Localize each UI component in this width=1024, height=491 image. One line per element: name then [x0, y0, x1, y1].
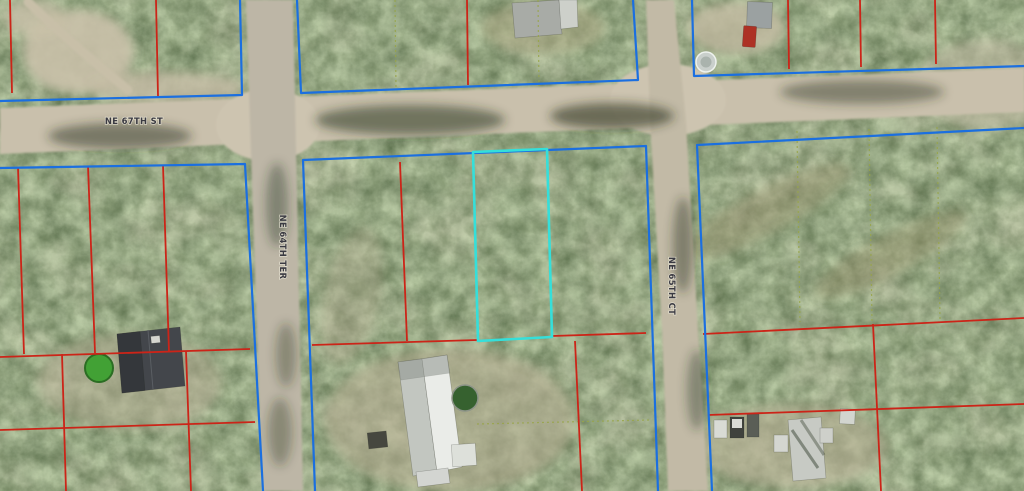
road-shadow [780, 80, 944, 104]
red-lot-line [467, 0, 468, 85]
red-truck-top-right [742, 26, 756, 48]
hut-bottom-center [367, 431, 388, 449]
street-label-ne-65th-ct: NE 65TH CT [667, 257, 677, 315]
road-shadow [315, 105, 505, 135]
aerial-parcel-map[interactable]: NE 67TH ST NE 64TH TER NE 65TH CT [0, 0, 1024, 491]
map-canvas[interactable]: NE 67TH ST NE 64TH TER NE 65TH CT [0, 0, 1024, 491]
road-shadow [276, 323, 296, 387]
shed-bottom-center [451, 443, 476, 467]
pool-top-right-water [701, 57, 712, 68]
red-lot-line [860, 0, 861, 67]
house-bottom-right-west-wing [774, 435, 788, 452]
street-label-ne-64th-ter: NE 64TH TER [278, 215, 288, 280]
house-top-center-annex [559, 0, 578, 29]
rv-bottom-right-2-top [732, 419, 742, 428]
house-bottom-right-east-wing [820, 428, 833, 443]
red-lot-line [788, 0, 789, 69]
green-pool-bottom-left [85, 354, 113, 382]
shed-top-right [747, 2, 773, 29]
road-shadow [550, 103, 674, 129]
red-lot-line [935, 0, 936, 64]
house-top-center [512, 0, 562, 38]
house-bottom-left-skylight [151, 335, 161, 343]
road-shadow [268, 398, 292, 466]
vehicle-bottom-right-3 [747, 414, 759, 437]
road-shadow [687, 350, 707, 430]
round-tank-bottom-center [452, 385, 478, 411]
street-label-ne-67th-st: NE 67TH ST [105, 116, 163, 126]
house-bottom-left-dark-wing [117, 332, 145, 394]
rv-bottom-right-1 [714, 420, 727, 438]
road-shadow [48, 123, 192, 149]
